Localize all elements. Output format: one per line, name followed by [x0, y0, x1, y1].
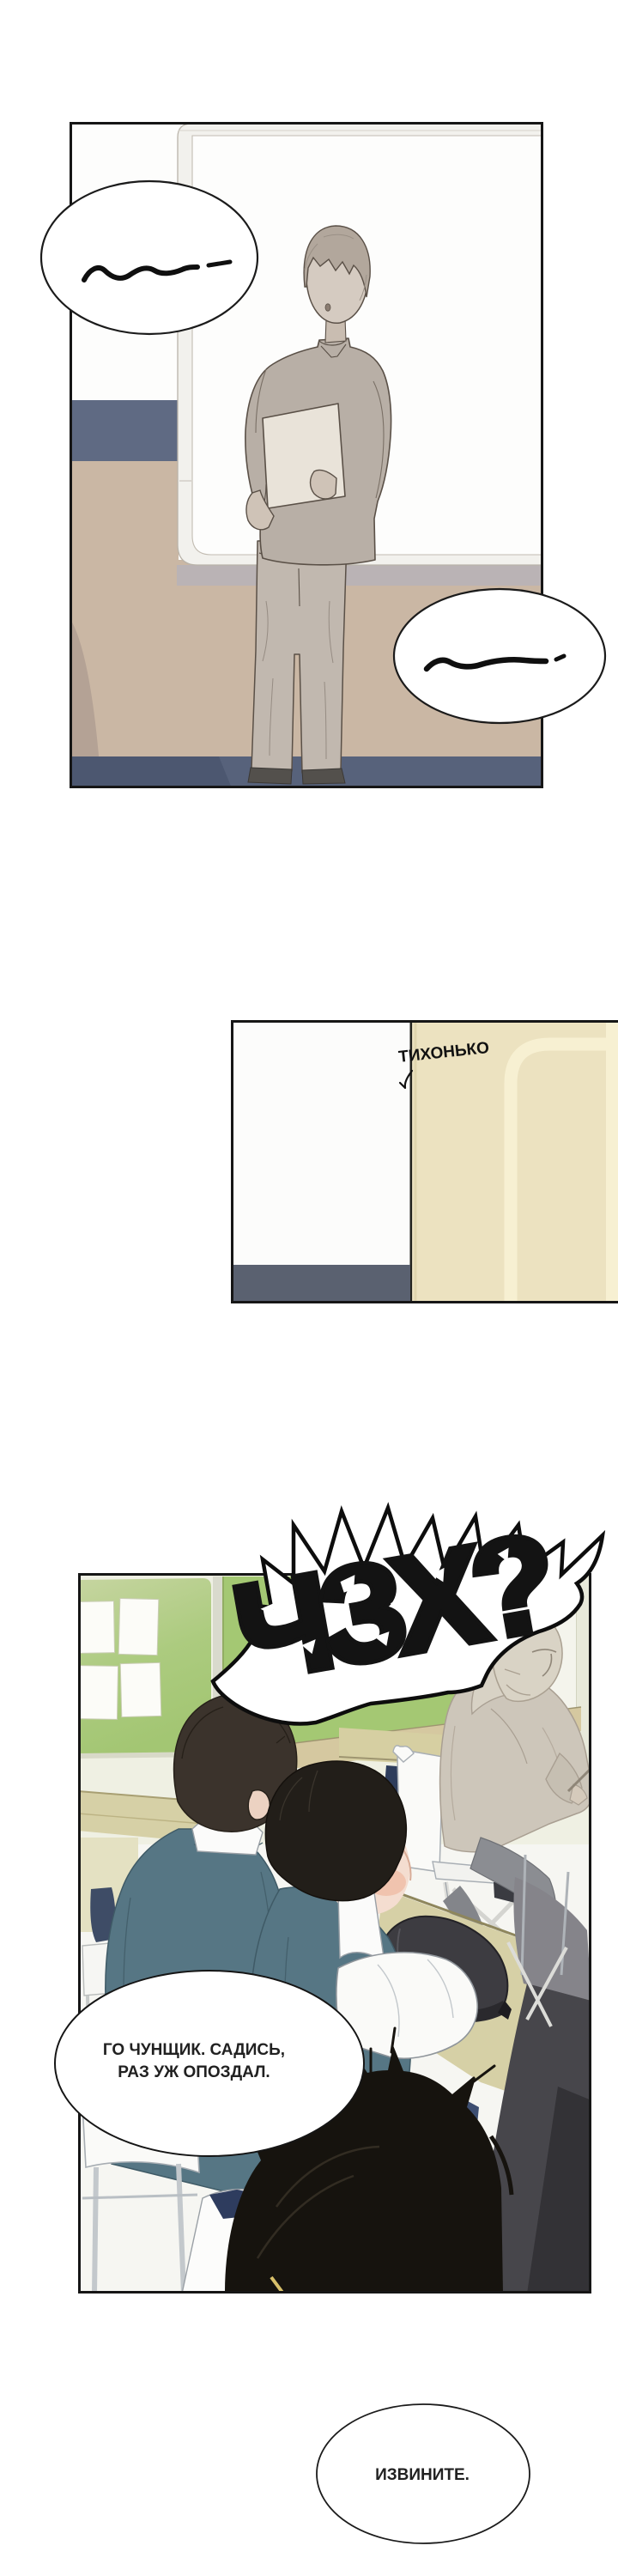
- svg-text:ГО ЧУНЩИК. САДИСЬ,: ГО ЧУНЩИК. САДИСЬ,: [103, 2041, 285, 2059]
- svg-text:РАЗ УЖ ОПОЗДАЛ.: РАЗ УЖ ОПОЗДАЛ.: [118, 2063, 270, 2081]
- svg-text:ИЗВИНИТЕ.: ИЗВИНИТЕ.: [375, 2466, 470, 2484]
